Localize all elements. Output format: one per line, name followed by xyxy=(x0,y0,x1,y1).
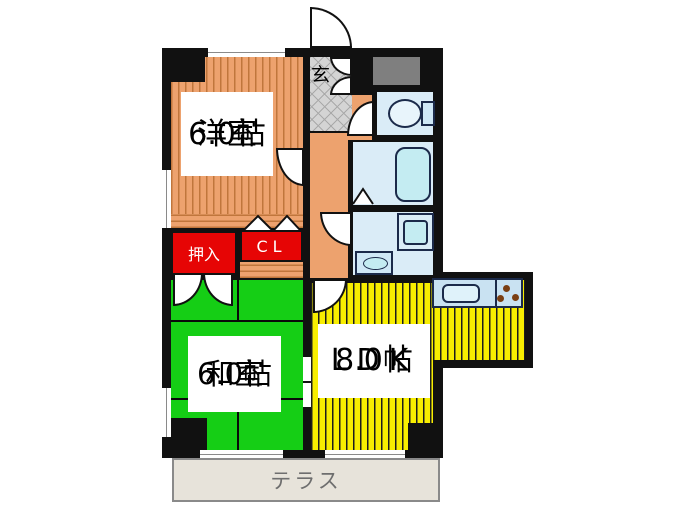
terrace-label: テラス xyxy=(270,465,342,495)
pillar xyxy=(408,423,436,453)
western-room-size: 6.0帖 xyxy=(188,114,266,155)
hallway-floor xyxy=(310,131,348,278)
bathroom-fold-door-icon xyxy=(351,186,375,205)
window-line xyxy=(166,170,167,228)
toilet-tank-icon xyxy=(421,101,435,126)
window-line xyxy=(208,52,285,53)
japanese-room-size: 6.0帖 xyxy=(197,355,272,393)
meter-box xyxy=(373,57,420,85)
cl-closet: CL xyxy=(240,230,303,262)
sliding-door-divider xyxy=(303,381,311,383)
oshiire-label: 押入 xyxy=(188,241,220,265)
entrance-door-swing-icon xyxy=(310,7,352,48)
japanese-room-label: 和室 6.0帖 xyxy=(188,336,281,412)
counter-divider xyxy=(495,280,497,306)
window xyxy=(162,170,171,228)
entrance-label: 玄 xyxy=(311,60,333,84)
sliding-door-opening xyxy=(303,357,311,407)
oshiire-closet: 押入 xyxy=(171,231,237,275)
window xyxy=(162,388,171,437)
window xyxy=(208,48,285,57)
stove-burner-icon xyxy=(497,295,504,302)
stove-burner-icon xyxy=(503,285,510,292)
stove-burner-icon xyxy=(512,294,519,301)
tatami-line xyxy=(237,280,239,320)
bathtub-icon xyxy=(395,147,431,202)
pillar xyxy=(168,418,207,453)
cl-closet-floor-strip xyxy=(240,262,303,278)
window xyxy=(200,450,283,458)
western-room-label: 洋室 6.0帖 xyxy=(181,92,273,176)
window-line xyxy=(166,388,167,437)
ldk-label: LDK 8.0帖 xyxy=(318,324,430,398)
vanity-sink-icon xyxy=(355,251,393,275)
cl-bifold-door-icon xyxy=(242,213,302,231)
ldk-size: 8.0帖 xyxy=(335,342,413,380)
window-line xyxy=(200,454,283,455)
vanity-basin-icon xyxy=(363,257,388,270)
window xyxy=(325,450,405,458)
terrace: テラス xyxy=(172,458,440,502)
window-line xyxy=(325,454,405,455)
toilet-icon xyxy=(388,99,422,128)
kitchen-counter xyxy=(432,278,523,308)
pillar xyxy=(168,53,205,82)
washing-machine-tub-icon xyxy=(403,220,428,245)
floor-plan: テラス 押入 CL xyxy=(0,0,700,525)
cl-label: CL xyxy=(256,237,286,256)
tatami-line xyxy=(171,320,303,322)
washing-machine-icon xyxy=(397,213,434,251)
kitchen-sink-icon xyxy=(442,284,480,303)
